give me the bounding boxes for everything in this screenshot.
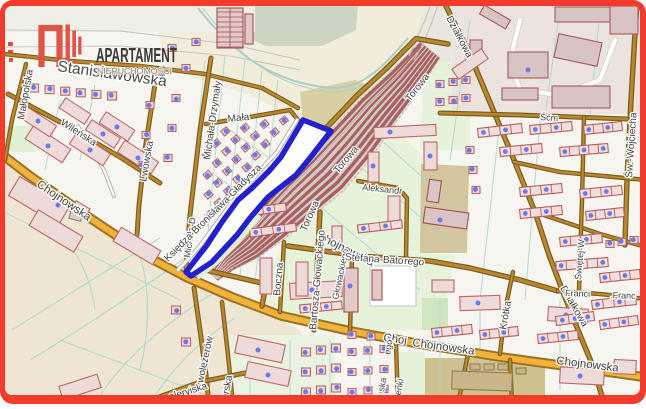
svg-text:APARTAMENT: APARTAMENT bbox=[96, 44, 177, 67]
svg-text:Śćm: Śćm bbox=[540, 111, 559, 123]
svg-text:.Franc: .Franc bbox=[610, 290, 636, 301]
svg-text:Mała: Mała bbox=[227, 112, 250, 125]
svg-text:NIERUCHOMOŚCI: NIERUCHOMOŚCI bbox=[97, 65, 172, 76]
svg-text:Franci: Franci bbox=[565, 288, 590, 299]
svg-text:rego: rego bbox=[404, 256, 425, 268]
